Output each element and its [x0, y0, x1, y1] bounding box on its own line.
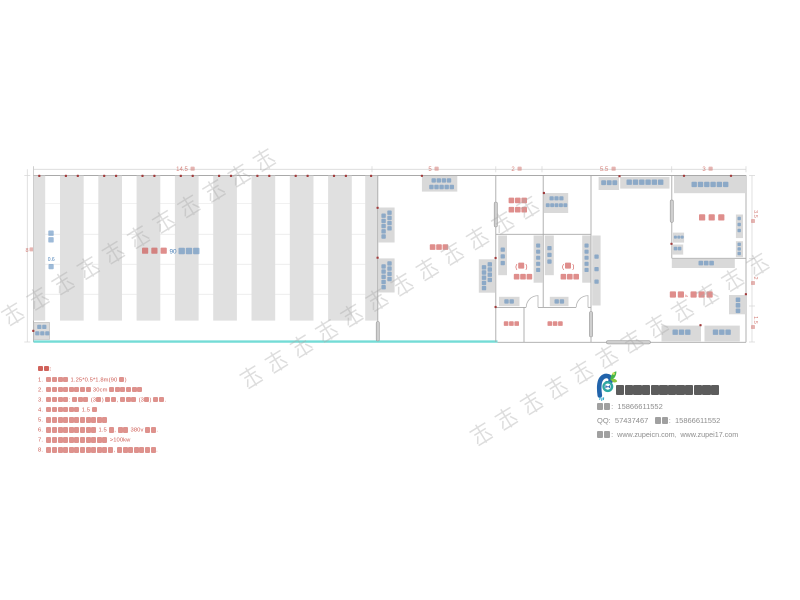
svg-text:ь: ь	[685, 293, 688, 298]
svg-text:5: 5	[428, 167, 432, 173]
svg-text:2: 2	[511, 167, 515, 173]
svg-text:5.5: 5.5	[600, 167, 609, 173]
svg-text:3: 3	[702, 167, 706, 173]
svg-text:2: 2	[752, 276, 758, 279]
svg-text:): )	[572, 263, 574, 270]
svg-text:14.5: 14.5	[176, 167, 188, 173]
svg-text:0.6: 0.6	[48, 257, 55, 263]
svg-text:(: (	[562, 263, 565, 270]
svg-text:3.5: 3.5	[752, 210, 758, 218]
svg-text:8: 8	[25, 248, 28, 254]
svg-text:90: 90	[170, 248, 178, 255]
svg-text:): )	[525, 263, 527, 270]
svg-text:1.5: 1.5	[752, 316, 758, 324]
svg-text:(: (	[515, 263, 518, 270]
